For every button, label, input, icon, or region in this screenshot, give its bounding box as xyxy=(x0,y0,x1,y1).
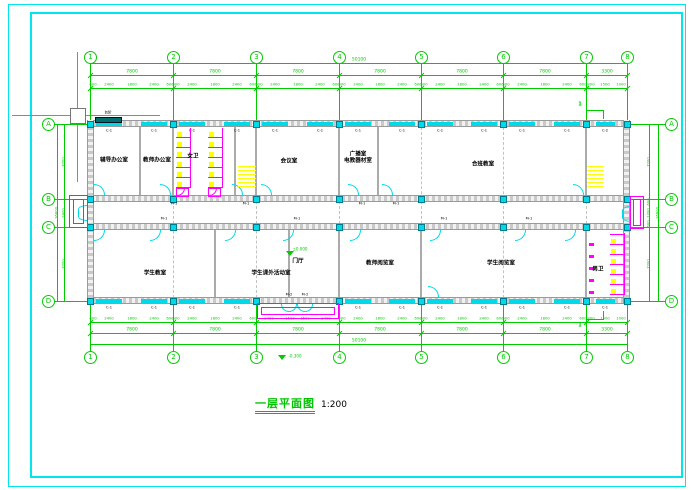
room-label-0: 辅导办公室 xyxy=(100,158,128,164)
porch-right-inner xyxy=(633,199,641,226)
grid-bubble-right-B: B xyxy=(665,193,678,206)
window-label-top-3b: C-1 xyxy=(399,129,405,133)
dim-fine-bottom-3-0: 600 xyxy=(339,317,346,321)
door-label-c-1: M-1 xyxy=(294,217,301,221)
column-3A xyxy=(253,121,260,128)
dim-fine-top-4-1: 2400 xyxy=(435,83,445,87)
window-top-5a xyxy=(509,122,535,126)
door-entry-m2-label-0: M-2 xyxy=(286,293,293,297)
toilet-women-fixture-1 xyxy=(176,188,189,197)
axis-lead-right-A xyxy=(630,124,666,125)
window-label-bottom-3b: C-1 xyxy=(399,306,405,310)
axis-lead-top-4 xyxy=(339,63,340,120)
dim-fine-bottom-4-3: 2400 xyxy=(479,317,489,321)
column-5D xyxy=(418,298,425,305)
dim-fine-top-4-3: 2400 xyxy=(479,83,489,87)
grid-bubble-bottom-4: 4 xyxy=(333,351,346,364)
window-label-bottom-4b: C-1 xyxy=(481,306,487,310)
column-6D xyxy=(500,298,507,305)
partition-top-1 xyxy=(172,127,174,195)
partition-top-0 xyxy=(139,127,141,195)
window-label-top-1b: C-1 xyxy=(234,129,240,133)
dim-right-seg-4: 7200 xyxy=(647,259,651,269)
column-7A xyxy=(583,121,590,128)
window-bottom-5a xyxy=(509,299,535,303)
dim-fine-bottom-0-0: 600 xyxy=(90,317,97,321)
window-top-3b xyxy=(389,122,414,126)
window-label-top-3a: C-1 xyxy=(355,129,361,133)
window-label-bottom-4a: C-1 xyxy=(437,306,443,310)
dim-bay-bottom-5: 7800 xyxy=(539,328,550,333)
grid-bubble-right-C: C xyxy=(665,221,678,234)
window-top-2a xyxy=(262,122,288,126)
column-6C xyxy=(500,224,507,231)
dim-fine-bottom-4-1: 2400 xyxy=(435,317,445,321)
column-3B xyxy=(253,196,260,203)
room-label-10: 男卫 xyxy=(592,267,603,273)
dim-fine-top-1-3: 2400 xyxy=(232,83,242,87)
window-top-6a xyxy=(596,122,615,126)
dim-fine-bottom-5-0: 600 xyxy=(503,317,510,321)
column-6B xyxy=(500,196,507,203)
axis-lead-bot-8 xyxy=(627,304,628,351)
room-label-4: 广播室 电教器材室 xyxy=(344,152,372,164)
column-4C xyxy=(336,224,343,231)
window-top-4a xyxy=(427,122,452,126)
room-label-6: 学生教室 xyxy=(144,271,166,277)
section-mark-bottom-label: 1 xyxy=(578,323,582,329)
grid-bubble-left-D: D xyxy=(42,295,55,308)
window-bottom-0b xyxy=(141,299,167,303)
column-6A xyxy=(500,121,507,128)
dim-fine-top-5-1: 2400 xyxy=(517,83,527,87)
dim-fine-top-0-3: 2400 xyxy=(149,83,159,87)
dim-fine-top-2-0: 600 xyxy=(256,83,263,87)
window-label-top-4b: C-1 xyxy=(481,129,487,133)
window-label-bottom-5a: C-1 xyxy=(519,306,525,310)
partition-bottom-1 xyxy=(288,230,290,297)
drawing-title: 一层平面图 xyxy=(255,397,315,414)
column-5A xyxy=(418,121,425,128)
dim-bay-top-1: 7800 xyxy=(209,70,220,75)
window-bottom-3a xyxy=(345,299,370,303)
dim-fine-bottom-4-2: 1800 xyxy=(457,317,467,321)
dim-total-top: 50100 xyxy=(351,58,365,63)
drawing-scale: 1:200 xyxy=(321,400,347,410)
datum-square xyxy=(70,108,86,124)
window-top-0b xyxy=(141,122,167,126)
dim-fine-top-2-2: 1800 xyxy=(293,83,303,87)
section-mark-top-h xyxy=(587,110,603,111)
dim-fine-top-0-2: 1800 xyxy=(127,83,137,87)
window-label-top-2b: C-1 xyxy=(317,129,323,133)
dim-fine-top-5-3: 2400 xyxy=(562,83,572,87)
room-label-8: 教师阅览室 xyxy=(366,261,394,267)
window-label-bottom-6: C-1 xyxy=(602,306,608,310)
room-label-2: 女卫 xyxy=(187,154,198,160)
section-mark-top-label: 1 xyxy=(578,102,582,108)
axis-lead-top-2 xyxy=(173,63,174,120)
column-5C xyxy=(418,224,425,231)
window-label-bottom-1a: C-1 xyxy=(189,306,195,310)
window-bottom-1b xyxy=(224,299,250,303)
dim-fine-bottom-1-1: 2400 xyxy=(187,317,197,321)
grid-bubble-right-A: A xyxy=(665,118,678,131)
section-mark-top-v xyxy=(603,110,604,119)
grid-bubble-bottom-5: 5 xyxy=(415,351,428,364)
dim-fine-bottom-0-3: 2400 xyxy=(149,317,159,321)
grid-bubble-right-D: D xyxy=(665,295,678,308)
window-label-top-6: C-2 xyxy=(602,129,608,133)
level-outdoor-value: -0.300 xyxy=(288,355,301,359)
dim-fine-top-2-3: 2400 xyxy=(315,83,325,87)
dim-fine-top-1-2: 1800 xyxy=(210,83,220,87)
column-1D xyxy=(87,298,94,305)
wall-exterior-left xyxy=(87,120,94,304)
partition-top-5 xyxy=(377,127,379,195)
window-bottom-4a xyxy=(427,299,452,303)
dim-fine-top-5-0: 600 xyxy=(503,83,510,87)
window-top-3a xyxy=(345,122,370,126)
window-label-top-0a: C-1 xyxy=(106,129,112,133)
window-label-top-5b: C-1 xyxy=(564,129,570,133)
window-bottom-6a xyxy=(596,299,615,303)
dim-right-seg-1: 600 xyxy=(647,198,651,205)
dim-fine-bottom-4-0: 600 xyxy=(421,317,428,321)
toilet-men-urinals xyxy=(589,236,594,294)
dim-bay-top-0: 7800 xyxy=(126,70,137,75)
window-label-bottom-1b: C-1 xyxy=(234,306,240,310)
window-bottom-5b xyxy=(554,299,580,303)
column-4B xyxy=(336,196,343,203)
axis-lead-top-6 xyxy=(503,63,504,120)
door-label-c-3: M-1 xyxy=(526,217,533,221)
dim-fine-top-5-2: 1800 xyxy=(540,83,550,87)
dim-fine-top-0-0: 600 xyxy=(90,83,97,87)
grid-bubble-left-B: B xyxy=(42,193,55,206)
room-label-9: 学生阅览室 xyxy=(487,261,515,267)
axis-lead-top-5 xyxy=(421,63,422,120)
hall-label: 门厅 xyxy=(292,259,303,265)
section-mark-bottom-h xyxy=(587,319,603,320)
section-mark-bottom-v xyxy=(603,311,604,320)
dim-right-seg-0: 7200 xyxy=(647,157,651,167)
stair-right xyxy=(587,166,604,187)
toilet-women-fixture-2 xyxy=(208,188,221,197)
column-1B xyxy=(87,196,94,203)
dim-bay-top-2: 7800 xyxy=(292,70,303,75)
column-2D xyxy=(170,298,177,305)
window-bottom-4b xyxy=(471,299,496,303)
dim-line-top-0 xyxy=(90,63,627,64)
window-label-top-0b: C-1 xyxy=(151,129,157,133)
window-top-5b xyxy=(554,122,580,126)
title-block: 一层平面图1:200 xyxy=(255,392,347,411)
window-top-4b xyxy=(471,122,496,126)
dim-fine-top-3-0: 600 xyxy=(339,83,346,87)
dim-fine-top-1-0: 600 xyxy=(173,83,180,87)
dim-line-bottom-2 xyxy=(90,344,627,345)
grid-bubble-bottom-7: 7 xyxy=(580,351,593,364)
dim-fine-top-3-3: 2400 xyxy=(397,83,407,87)
door-label-b-0: M-1 xyxy=(171,202,178,206)
window-bottom-1a xyxy=(179,299,205,303)
column-1A xyxy=(87,121,94,128)
axis-lead-left-A xyxy=(54,124,87,125)
door-label-c-2: M-1 xyxy=(441,217,448,221)
dim-fine-bottom-3-2: 1800 xyxy=(375,317,385,321)
dim-bay-bottom-0: 7800 xyxy=(126,328,137,333)
column-5B xyxy=(418,196,425,203)
dim-bay-bottom-1: 7800 xyxy=(209,328,220,333)
column-4A xyxy=(336,121,343,128)
dim-fine-top-0-1: 2400 xyxy=(104,83,114,87)
floorplan-sheet: 1122334455667788AABBCCDD5010050100780078… xyxy=(0,0,692,490)
column-2C xyxy=(170,224,177,231)
axis-lead-left-D xyxy=(54,301,87,302)
window-bottom-0a xyxy=(96,299,122,303)
column-7C xyxy=(583,224,590,231)
column-8D xyxy=(624,298,631,305)
grid-bubble-bottom-8: 8 xyxy=(621,351,634,364)
grid-bubble-bottom-6: 6 xyxy=(497,351,510,364)
column-1C xyxy=(87,224,94,231)
dim-fine-bottom-5-3: 2400 xyxy=(562,317,572,321)
dim-bay-bottom-2: 7800 xyxy=(292,328,303,333)
axis-lead-top-7 xyxy=(586,63,587,120)
dim-fine-top-1-1: 2400 xyxy=(187,83,197,87)
column-7B xyxy=(583,196,590,203)
door-label-b-3: M-1 xyxy=(393,202,400,206)
level-marker-outdoor-flag xyxy=(278,355,286,360)
window-label-top-5a: C-1 xyxy=(519,129,525,133)
window-label-bottom-0a: C-1 xyxy=(106,306,112,310)
stair-left xyxy=(238,166,256,187)
toilet-women-bank-2-fixtures xyxy=(209,129,214,187)
dim-fine-top-5-4: 600 xyxy=(579,83,586,87)
dim-fine-bottom-5-1: 2400 xyxy=(517,317,527,321)
toilet-women-bank-1-fixtures xyxy=(177,129,182,187)
window-label-bottom-5b: C-1 xyxy=(564,306,570,310)
grid-dash-6 xyxy=(503,127,504,298)
dim-fine-top-3-1: 2400 xyxy=(353,83,363,87)
window-top-1b xyxy=(224,122,250,126)
dim-fine-bottom-1-4: 600 xyxy=(249,317,256,321)
dim-left-total: 16800 xyxy=(55,206,59,218)
dim-fine-bottom-6-2: 1000 xyxy=(616,317,626,321)
window-label-top-2a: C-1 xyxy=(272,129,278,133)
door-entry-m2-label-1: M-2 xyxy=(302,293,309,297)
door-label-c-0: M-1 xyxy=(161,217,168,221)
axis-lead-top-3 xyxy=(256,63,257,120)
dim-fine-top-6-2: 1000 xyxy=(616,83,626,87)
dim-right-seg-2: 1200 xyxy=(647,208,651,218)
dim-right-total: 16800 xyxy=(656,206,660,218)
column-7D xyxy=(583,298,590,305)
entry-canopy-label: 台阶 xyxy=(104,111,111,115)
grid-bubble-left-C: C xyxy=(42,221,55,234)
column-8A xyxy=(624,121,631,128)
porch-entry-inner xyxy=(261,307,335,315)
window-bottom-3b xyxy=(389,299,414,303)
dim-left-seg-0: 7200 xyxy=(62,157,66,167)
dim-fine-bottom-5-2: 1800 xyxy=(540,317,550,321)
entry-canopy-bar xyxy=(95,117,122,123)
dim-fine-bottom-1-3: 2400 xyxy=(232,317,242,321)
dim-bay-top-5: 7800 xyxy=(539,70,550,75)
room-label-7: 学生课外活动室 xyxy=(251,271,290,277)
dim-right-seg-3: 600 xyxy=(647,220,651,227)
column-3C xyxy=(253,224,260,231)
dim-total-bottom: 50100 xyxy=(351,339,365,344)
dim-fine-top-6-1: 1500 xyxy=(600,83,610,87)
dim-fine-bottom-1-0: 600 xyxy=(173,317,180,321)
grid-bubble-bottom-1: 1 xyxy=(84,351,97,364)
grid-bubble-left-A: A xyxy=(42,118,55,131)
porch-left-inner xyxy=(73,199,84,224)
door-label-b-1: M-1 xyxy=(243,202,250,206)
dim-fine-bottom-0-2: 1800 xyxy=(127,317,137,321)
room-label-3: 会议室 xyxy=(281,159,298,165)
axis-lead-top-1 xyxy=(90,63,91,120)
dim-bay-top-6: 3300 xyxy=(601,70,612,75)
window-top-1a xyxy=(179,122,205,126)
axis-lead-top-8 xyxy=(627,63,628,120)
dim-bay-bottom-4: 7800 xyxy=(456,328,467,333)
dim-fine-bottom-5-4: 600 xyxy=(579,317,586,321)
partition-bottom-3 xyxy=(420,230,422,297)
dim-fine-bottom-3-1: 2400 xyxy=(353,317,363,321)
grid-bubble-bottom-3: 3 xyxy=(250,351,263,364)
dim-left-seg-2: 7200 xyxy=(62,259,66,269)
axis-lead-right-D xyxy=(630,301,666,302)
room-label-1: 教师办公室 xyxy=(143,158,171,164)
dim-fine-top-4-2: 1800 xyxy=(457,83,467,87)
dim-bay-bottom-6: 3300 xyxy=(601,328,612,333)
door-label-b-2: M-1 xyxy=(359,202,366,206)
toilet-men-bank-fixtures xyxy=(611,234,616,294)
dim-fine-bottom-1-2: 1800 xyxy=(210,317,220,321)
dim-bay-top-4: 7800 xyxy=(456,70,467,75)
column-2A xyxy=(170,121,177,128)
partition-bottom-4 xyxy=(585,230,587,297)
level-floor-value: ±0.000 xyxy=(293,248,308,252)
partition-bottom-0 xyxy=(214,230,216,297)
window-top-2b xyxy=(307,122,333,126)
window-label-bottom-0b: C-1 xyxy=(151,306,157,310)
dim-fine-top-4-0: 600 xyxy=(421,83,428,87)
window-label-bottom-3a: C-1 xyxy=(355,306,361,310)
partition-top-4 xyxy=(338,127,340,195)
dim-bay-bottom-3: 7800 xyxy=(374,328,385,333)
window-label-top-4a: C-1 xyxy=(437,129,443,133)
room-label-5: 合班教室 xyxy=(472,162,494,168)
dim-fine-top-2-1: 2400 xyxy=(270,83,280,87)
datum-h-line xyxy=(12,115,160,116)
dim-left-seg-1: 2400 xyxy=(62,208,66,218)
grid-bubble-bottom-2: 2 xyxy=(167,351,180,364)
dim-bay-top-3: 7800 xyxy=(374,70,385,75)
dim-fine-bottom-0-1: 2400 xyxy=(104,317,114,321)
dim-fine-top-3-2: 1800 xyxy=(375,83,385,87)
partition-bottom-2 xyxy=(338,230,340,297)
dim-fine-top-6-0: 800 xyxy=(587,83,594,87)
dim-fine-bottom-3-3: 2400 xyxy=(397,317,407,321)
